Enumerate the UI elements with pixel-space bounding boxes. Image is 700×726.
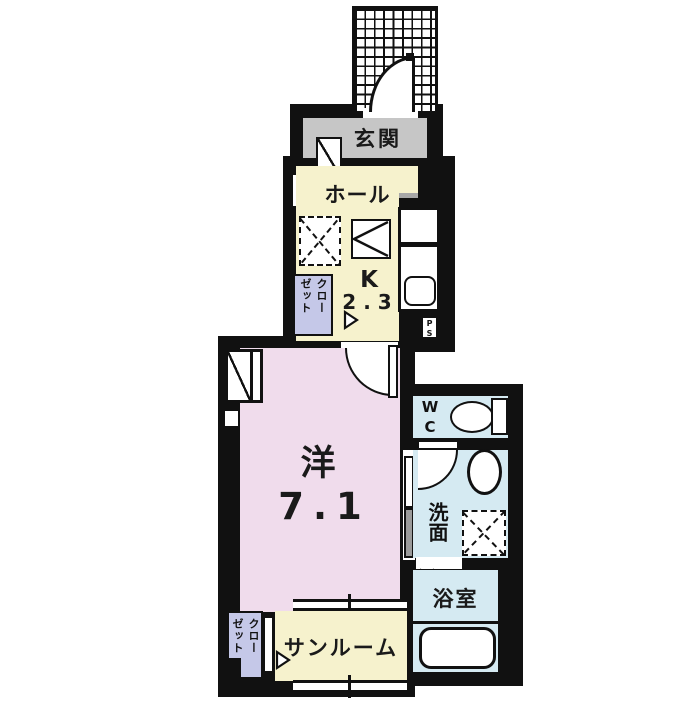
closet-upper-label-col2: ゼット xyxy=(297,278,313,332)
main-room-label: 洋 xyxy=(268,440,368,480)
window-mullion-tick xyxy=(348,675,351,698)
step-direction-marker xyxy=(274,649,292,671)
wc-label-line2: C xyxy=(419,418,441,438)
washing-machine-cross-line xyxy=(464,510,506,553)
closet-door-leaf xyxy=(263,616,274,673)
washbasin-icon xyxy=(467,449,502,495)
closet-upper-label: クロー ゼット xyxy=(297,278,329,332)
toilet-icon xyxy=(450,401,494,433)
bathroom-label: 浴室 xyxy=(415,586,496,610)
counter-sink-basin xyxy=(404,276,436,306)
genkan-label: 玄関 xyxy=(332,124,424,152)
window-mullion xyxy=(250,352,253,400)
step-direction-marker xyxy=(342,309,360,331)
hall-label: ホール xyxy=(305,181,410,206)
washroom-label: 洗面 xyxy=(426,492,452,552)
bath-unit-divider xyxy=(413,621,498,624)
closet-lower-label-col1: クロー xyxy=(245,618,261,672)
toilet-tank-icon xyxy=(491,398,508,435)
kitchen-sink-icon xyxy=(351,219,391,259)
bathtub-icon xyxy=(419,627,496,669)
floor-plan: 玄関 P S ホール K 2.3 P S クロー ゼット xyxy=(0,0,700,726)
wall-niche xyxy=(225,411,238,426)
ps-lower-line1: P xyxy=(423,319,436,329)
washing-machine-space xyxy=(462,510,506,556)
refrigerator-space-cross-line xyxy=(301,216,341,263)
wc-label-line1: W xyxy=(419,398,441,418)
wall-pillar xyxy=(226,658,241,678)
window-casement-line xyxy=(228,352,250,400)
refrigerator-space xyxy=(299,216,341,266)
kitchen-label: K xyxy=(340,268,398,292)
wc-label: W C xyxy=(419,398,441,438)
sunroom-label: サンルーム xyxy=(277,634,405,660)
main-room-size: 7.1 xyxy=(258,484,382,528)
ps-lower-line2: S xyxy=(423,329,436,339)
pipe-space-lower: P S xyxy=(421,316,438,339)
kitchen-counter-upper xyxy=(398,207,440,245)
closet-upper-label-col1: クロー xyxy=(313,278,329,332)
wc-door-leaf xyxy=(417,440,459,450)
room-door-leaf xyxy=(388,345,398,398)
closet-upper: クロー ゼット xyxy=(293,274,333,336)
entrance-door-hinge xyxy=(406,53,414,61)
window-symbol-left xyxy=(225,349,263,403)
